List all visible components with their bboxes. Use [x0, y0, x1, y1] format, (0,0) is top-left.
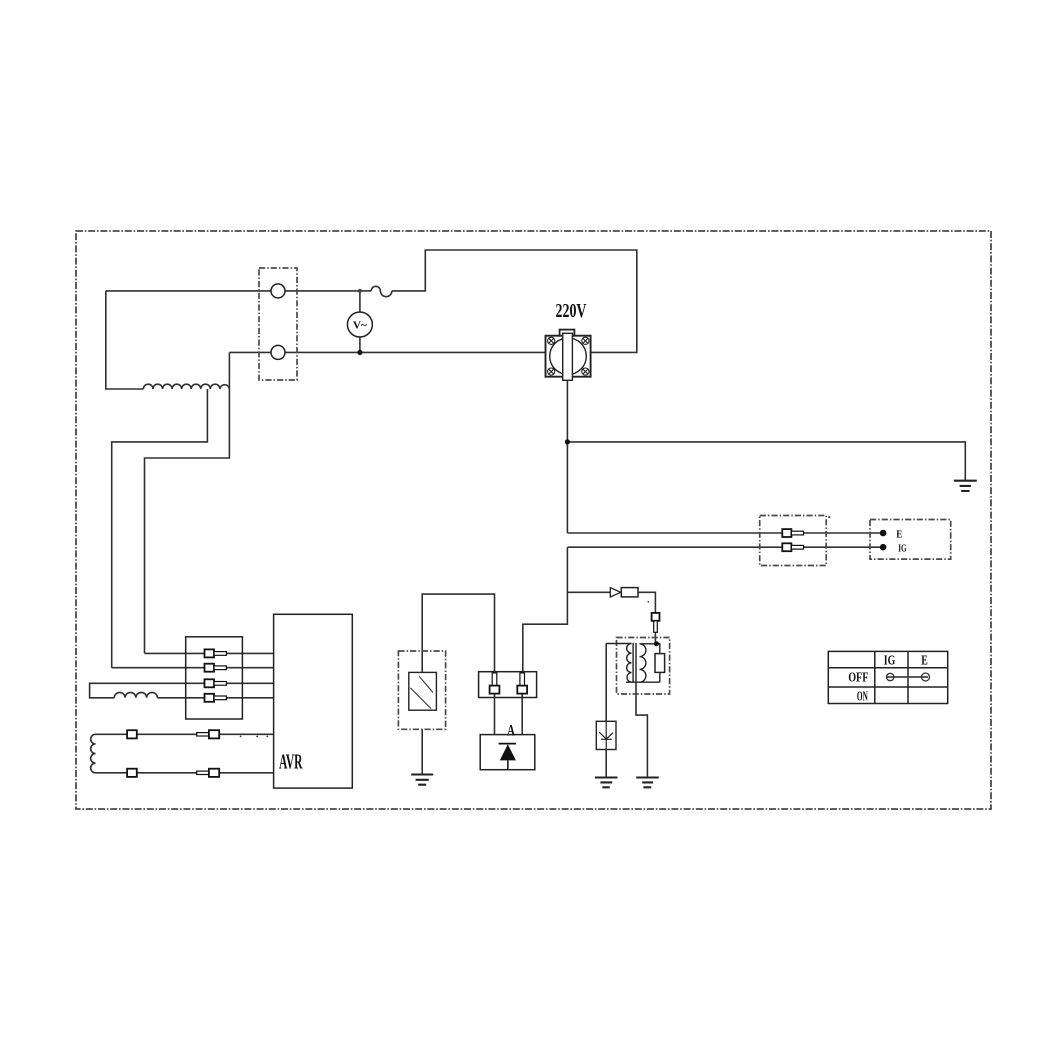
svg-text:ON: ON — [857, 689, 868, 704]
svg-text:IG: IG — [898, 543, 907, 555]
svg-text:A: A — [507, 723, 515, 740]
svg-text:V~: V~ — [353, 320, 367, 332]
svg-text:IG: IG — [884, 654, 896, 669]
svg-text:220V: 220V — [556, 300, 587, 322]
svg-text:OFF: OFF — [848, 671, 868, 686]
svg-text:E: E — [896, 529, 902, 541]
svg-text:E: E — [921, 654, 928, 669]
svg-text:AVR: AVR — [279, 749, 303, 773]
